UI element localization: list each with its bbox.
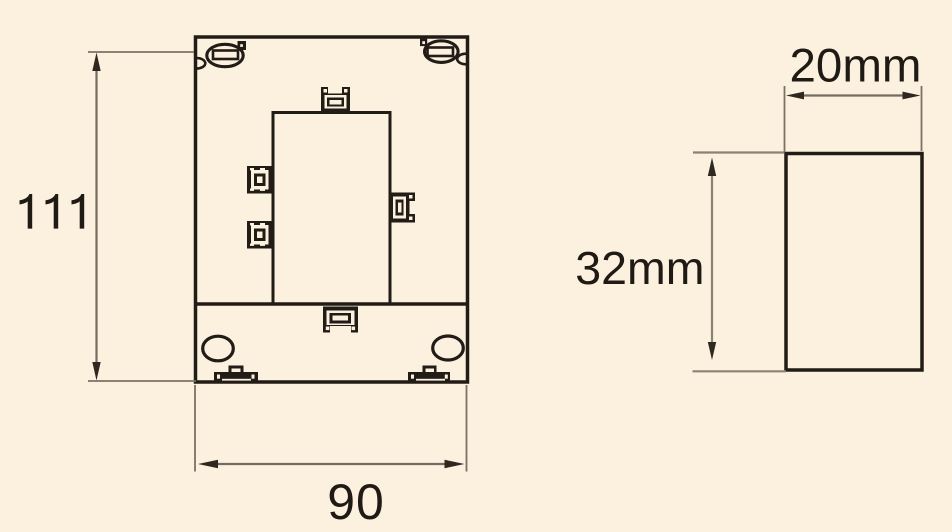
svg-text:90: 90 [327,474,385,530]
svg-text:20mm: 20mm [790,40,922,93]
svg-text:32mm: 32mm [575,242,704,294]
